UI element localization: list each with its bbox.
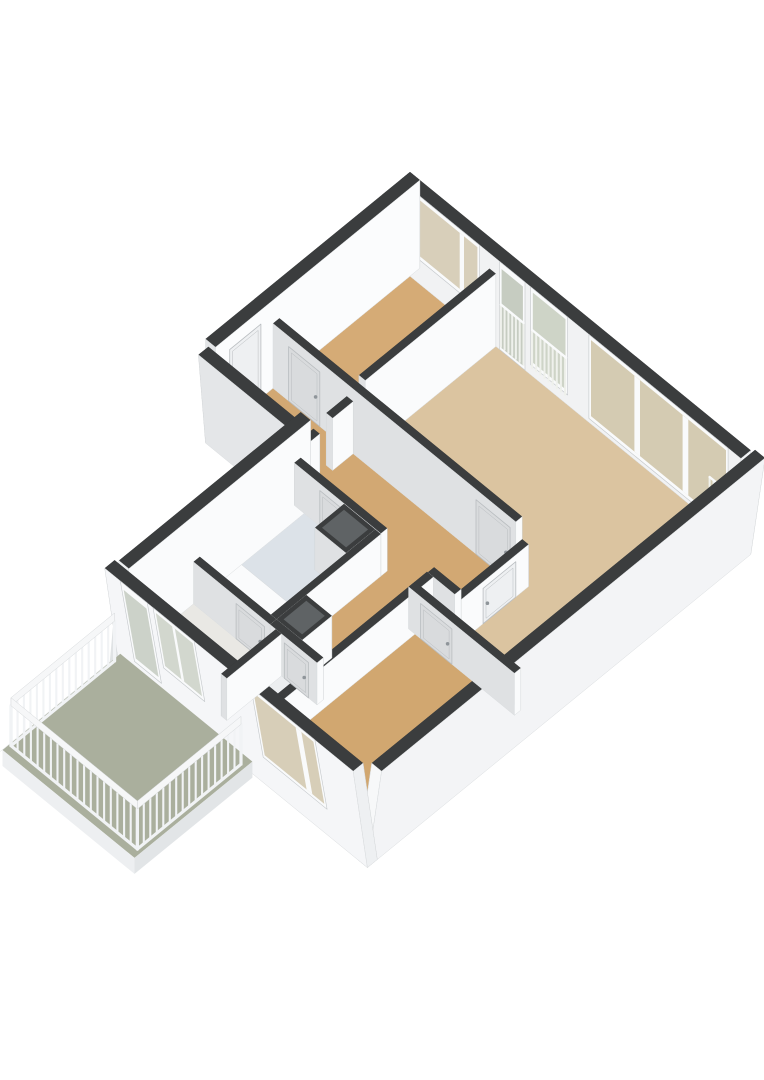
bedroom2-door-handle	[446, 642, 450, 646]
bedroom1-door-handle	[314, 395, 318, 399]
bedroom1-window-mullion-0	[460, 233, 464, 292]
living-door-b-handle	[486, 601, 490, 605]
floorplan-3d-rendering	[0, 0, 764, 1080]
living-window-wall-mullion-1	[683, 415, 689, 496]
partition-hall-bathroom-face-x	[381, 528, 387, 576]
floorplan-canvas	[0, 0, 764, 1080]
toilet-door-handle	[302, 676, 306, 680]
partition-corridor-toilet-face-x	[317, 658, 323, 705]
living-window-wall-mullion-0	[634, 376, 640, 457]
partition-living-bedroom2-face-x	[514, 668, 520, 715]
partition-entry-hall-a-face-y	[326, 413, 332, 470]
partition-kitchen-toilet-face-y	[221, 674, 227, 721]
